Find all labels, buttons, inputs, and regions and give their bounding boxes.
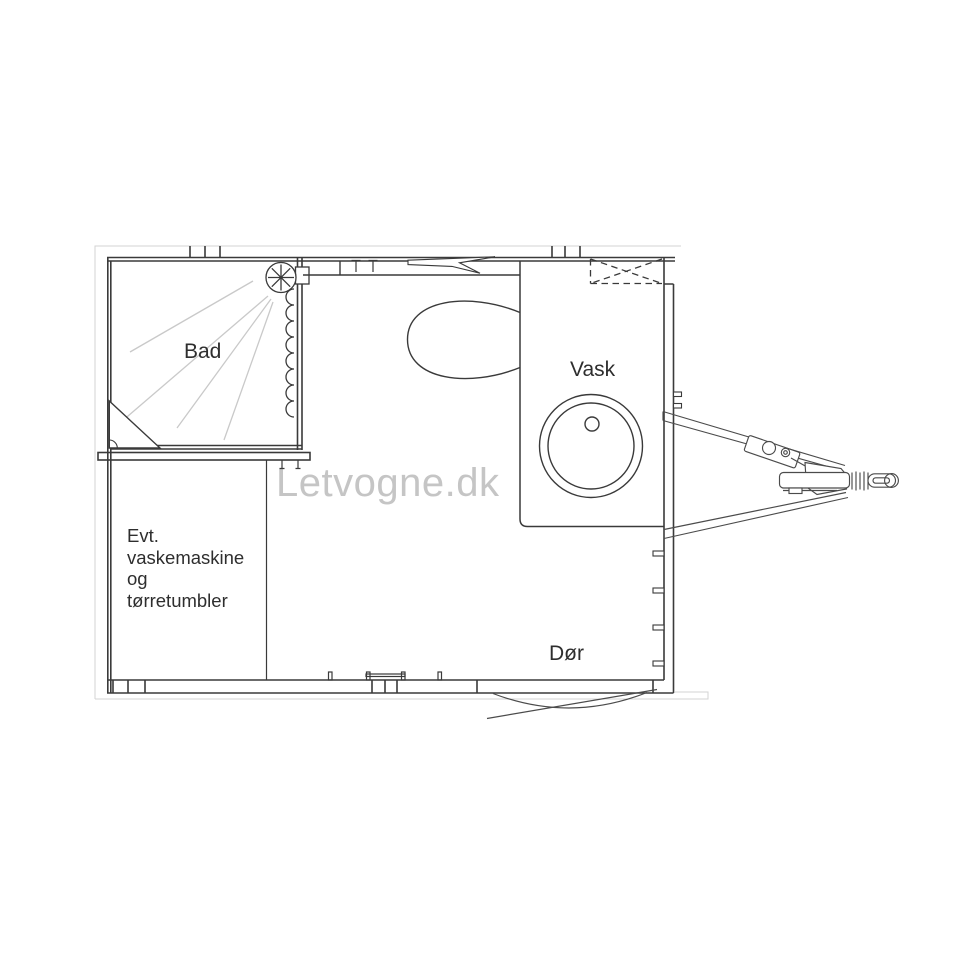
door-jambs [477, 680, 653, 693]
coupling-bellows [852, 472, 868, 491]
trailer-hitch-icon [663, 412, 898, 539]
drawbar-lower [664, 493, 848, 539]
coupling-body [780, 463, 850, 495]
skylight-vent-icon [591, 259, 663, 284]
door-label: Dør [549, 642, 584, 666]
jockey-plate [744, 435, 807, 468]
shower-step-pins [280, 460, 301, 469]
washer-note-line: Evt. [127, 525, 244, 547]
bottom-wall-pins [329, 672, 442, 680]
shower-corner-triangle [109, 401, 160, 448]
floorplan-page: Letvogne.dk [0, 0, 960, 960]
top-wall-ticks [190, 246, 580, 258]
wall-bracket-icon [408, 257, 495, 273]
sink-label: Vask [570, 358, 615, 382]
floorplan-drawing [0, 0, 960, 960]
shower-step [98, 453, 310, 461]
washer-note-line: og [127, 568, 244, 590]
toilet-icon [408, 301, 521, 378]
top-shelf-rail [303, 257, 520, 275]
coat-hooks-icon [352, 261, 378, 273]
washer-note: Evt. vaskemaskine og tørretumbler [127, 525, 244, 611]
shower-room-label: Bad [184, 340, 221, 364]
sink-icon [540, 395, 643, 498]
shower-curtain-icon [286, 289, 294, 417]
washer-note-line: tørretumbler [127, 590, 244, 612]
door-swing-icon [487, 690, 657, 719]
washer-note-line: vaskemaskine [127, 547, 244, 569]
bottom-wall-ticks [113, 680, 397, 693]
hitch-handle [868, 474, 898, 488]
